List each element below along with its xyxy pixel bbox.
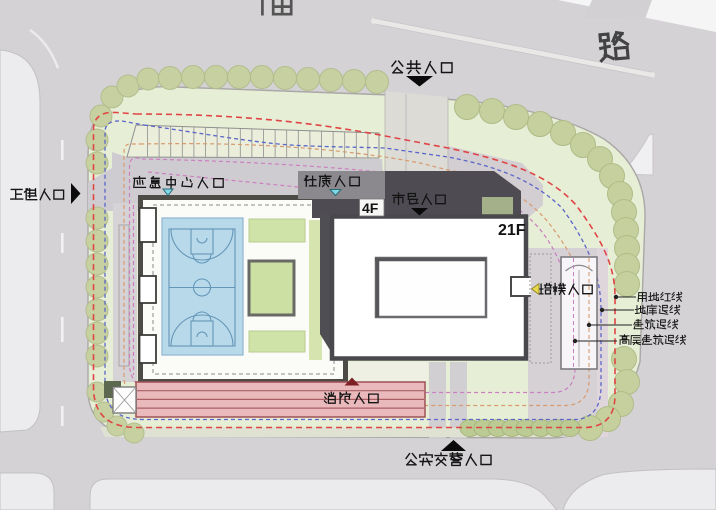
svg-text:21F: 21F: [498, 222, 526, 239]
svg-text:4F: 4F: [362, 200, 379, 216]
